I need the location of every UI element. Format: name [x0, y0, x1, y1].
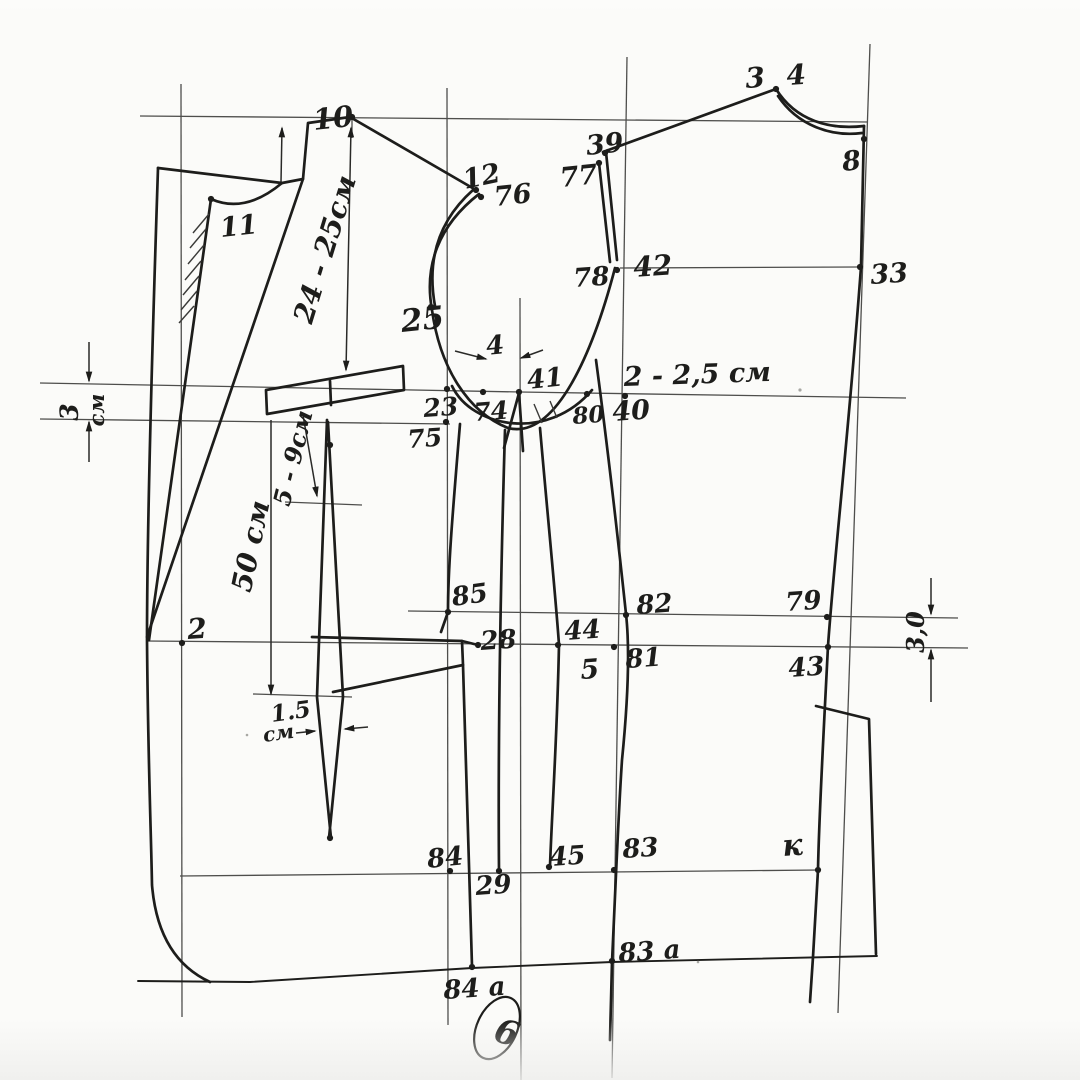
label-p39: 39	[584, 127, 625, 162]
scan-speck	[246, 734, 249, 737]
dim-4-arrow-left	[455, 351, 486, 359]
label-p81: 81	[623, 643, 662, 676]
label-p42: 42	[632, 248, 673, 284]
label-p41: 41	[526, 362, 565, 396]
scan-speck	[798, 388, 801, 391]
armhole-curve-inner	[432, 190, 473, 306]
label-dim30R: 3,0	[901, 611, 930, 653]
label-p44: 44	[563, 615, 601, 647]
construction-line-hip	[408, 611, 958, 618]
point-dot-44	[555, 642, 561, 648]
point-dot-85	[445, 609, 451, 615]
label-p80: 80	[571, 401, 606, 430]
label-p78: 78	[572, 262, 610, 294]
point-dot-74	[480, 389, 486, 395]
hatching-back-dart	[179, 214, 209, 323]
label-p82: 82	[634, 589, 673, 622]
front-shoulder-line	[350, 117, 476, 190]
side-panel-front-edge	[463, 665, 472, 966]
scan-speck	[697, 961, 700, 964]
back-vent	[816, 706, 876, 954]
label-p28: 28	[478, 625, 517, 658]
point-dot-82	[623, 612, 629, 618]
back-diagonal-2	[149, 199, 211, 640]
back-shoulder-line	[158, 168, 282, 183]
point-dot-dart-bottom	[327, 835, 333, 841]
pattern-point-labels: 101112762539773 484278332374418040752 - …	[55, 57, 930, 1055]
label-p11: 11	[218, 209, 259, 244]
label-p10: 10	[311, 99, 355, 137]
label-p43: 43	[787, 652, 825, 684]
point-dot-dart-top	[327, 442, 333, 448]
dim-15-arrow-right	[345, 727, 368, 729]
label-p85: 85	[449, 578, 490, 613]
label-p45: 45	[548, 841, 586, 873]
side-panel-wedge	[312, 637, 463, 692]
label-dim225: 2 - 2,5 см	[622, 357, 771, 393]
hem-line	[138, 956, 877, 982]
point-dot-K	[815, 867, 821, 873]
label-p40: 40	[611, 394, 651, 428]
back-diagonal-1	[147, 179, 303, 637]
point-dot-83a	[609, 958, 615, 964]
point-dot-81	[611, 644, 617, 650]
label-p79: 79	[784, 586, 822, 618]
label-p84: 84	[425, 841, 465, 875]
point-dot-33	[857, 264, 863, 270]
label-p83: 83	[620, 833, 659, 866]
dim-shoulder-arrow	[281, 128, 282, 182]
scan-specks	[246, 388, 802, 963]
label-p75: 75	[406, 423, 443, 454]
point-dot-79	[824, 614, 830, 620]
point-dot-84a	[469, 964, 475, 970]
point-dot-8	[861, 136, 867, 142]
label-p5: 5	[579, 654, 600, 686]
construction-vertical-1	[181, 84, 182, 1017]
label-p84a: 84 а	[441, 972, 506, 1006]
point-dot-41	[516, 389, 522, 395]
pattern-drawing-svg: 101112762539773 484278332374418040752 - …	[0, 0, 1080, 1080]
label-p23: 23	[421, 392, 459, 423]
pattern-point-dots	[179, 86, 867, 970]
label-dim3L-num: 3	[55, 403, 84, 420]
dim-4-arrow-right	[521, 350, 543, 358]
label-dim4: 4	[485, 330, 506, 362]
pocket-welt-division	[330, 381, 331, 405]
construction-line-top	[140, 116, 868, 122]
label-dim15-unit: см	[261, 719, 295, 747]
label-p34: 3 4	[744, 57, 813, 95]
dim-24-25-line	[346, 128, 351, 370]
dim-15-arrow-left	[296, 731, 315, 733]
point-dot-80	[584, 391, 590, 397]
back-princess-seam-pair	[599, 152, 617, 262]
construction-vertical-5	[838, 44, 870, 1013]
label-p83a: 83 а	[616, 935, 681, 969]
label-p29: 29	[473, 870, 512, 903]
label-p2: 2	[185, 612, 208, 646]
label-p77: 77	[558, 159, 599, 194]
label-p33: 33	[869, 257, 909, 291]
back-neck-curve	[211, 183, 282, 204]
label-pK: к	[781, 828, 804, 864]
label-sheet6: 6	[489, 1011, 524, 1056]
label-p25: 25	[398, 300, 446, 340]
label-dim3L-unit: см	[84, 394, 109, 427]
point-dot-76	[478, 194, 484, 200]
back-piece-left-outline	[147, 168, 210, 982]
label-p8: 8	[839, 145, 862, 178]
label-dim50: 50 см	[225, 497, 276, 594]
point-dot-11	[208, 196, 214, 202]
point-dot-23	[444, 386, 450, 392]
point-dot-43	[825, 644, 831, 650]
pattern-sheet: 101112762539773 484278332374418040752 - …	[0, 0, 1080, 1080]
label-p76: 76	[492, 178, 533, 213]
construction-line-chest	[40, 383, 906, 398]
point-dot-83	[611, 867, 617, 873]
point-dot-2	[179, 640, 185, 646]
waist-dart	[317, 420, 343, 838]
label-p74: 74	[472, 396, 509, 427]
point-dot-78	[614, 267, 620, 273]
